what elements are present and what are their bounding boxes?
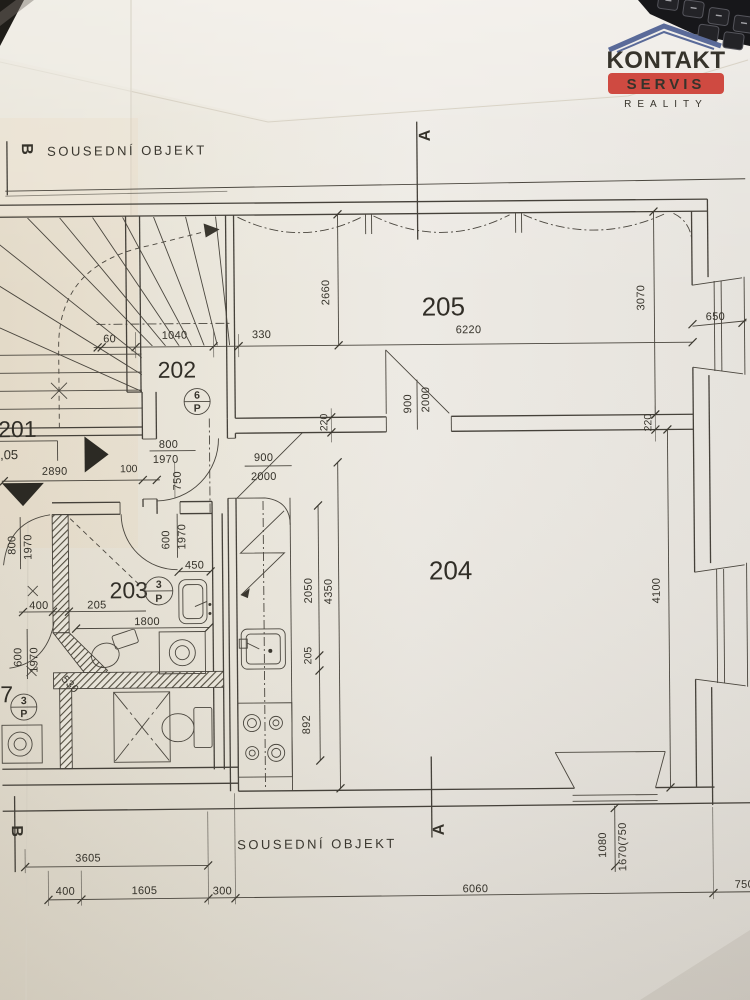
room-label-203: 203 [109,577,148,603]
dim-205: 205 [87,599,106,611]
room-label-204: 204 [429,555,473,585]
section-marker-b-top: B [18,143,35,155]
dim-2660: 2660 [320,280,332,306]
dim-450: 450 [185,559,204,571]
dim-60: 60 [103,333,116,345]
dim-3070: 3070 [635,285,647,311]
dim-door205-2000: 2000 [420,387,432,413]
dim-100: 100 [120,463,138,475]
dim-door202-800: 800 [159,439,178,451]
dim-2050: 2050 [303,578,315,604]
room-label-202: 202 [158,357,197,383]
dim-650: 650 [706,311,725,323]
dim-400-bottom: 400 [56,886,75,898]
section-marker-b-bottom: B [8,825,25,837]
symbol-3p-wc: 3 P [11,694,37,720]
symbol-6p-number: 6 [194,390,200,402]
symbol-6p: 6 P [184,388,210,414]
dim-1080: 1080 [597,832,609,858]
dim-door202-1970: 1970 [153,454,179,466]
dim-door204-900: 900 [254,452,273,464]
dim-1040: 1040 [162,330,188,342]
dim-300: 300 [213,885,232,897]
keyboard-key [708,7,730,26]
dim-892: 892 [301,715,313,734]
dim-door203-1970: 1970 [176,524,188,550]
symbol-3p2-letter: P [20,708,27,720]
logo-subtitle: SERVIS [627,76,706,93]
dim-doorW-600: 600 [12,647,24,666]
dim-door204-2000: 2000 [251,471,277,483]
dim-1605: 1605 [132,885,158,897]
dim-330: 330 [252,329,271,341]
dim-1670-750: 1670(750 [617,822,629,871]
dim-205-kitchen: 205 [302,647,314,665]
keyboard-key [682,0,704,18]
logo-title: KONTAKT [606,47,725,74]
keyboard-key [733,15,750,34]
dim-6060: 6060 [463,883,489,895]
dim-4100: 4100 [651,578,663,604]
symbol-3p2-number: 3 [21,695,27,707]
room-label-205: 205 [421,291,465,321]
dim-3605: 3605 [75,852,101,864]
symbol-6p-letter: P [194,403,201,415]
dim-750-bottom: 750 [735,879,750,891]
hatched-wall-left [52,515,69,633]
dim-1800: 1800 [134,616,160,628]
section-marker-a-top: A [417,129,434,141]
dim-220-right: 220 [642,414,654,432]
room-label-201: 201 [0,416,37,442]
symbol-3p-letter: P [155,593,162,605]
symbol-3p-bath: 3 P [145,577,173,605]
neighbor-label-bottom: SOUSEDNÍ OBJEKT [237,836,397,852]
logo-tagline: REALITY [624,99,708,110]
dim-400: 400 [29,600,48,612]
neighbor-label-top: SOUSEDNÍ OBJEKT [47,142,207,158]
dim-door205-900: 900 [402,394,414,413]
hatched-wall-strip [60,689,73,769]
dim-2890: 2890 [42,466,68,478]
elevation-value: 14,05 [0,447,18,462]
dim-doorL-800: 800 [6,535,18,554]
dim-doorW-1970: 1970 [28,647,40,673]
dim-door203-600: 600 [160,530,172,549]
dim-750: 750 [172,471,184,490]
dim-4350: 4350 [323,579,335,605]
photo-of-floor-plan: KONTAKT SERVIS REALITY B A A B SOUSEDNÍ … [0,0,750,1000]
dim-6220: 6220 [456,324,482,336]
dim-doorL-1970: 1970 [22,534,34,560]
section-marker-a-bottom: A [431,823,448,835]
symbol-3p-number: 3 [156,579,162,591]
keyboard-key [722,32,744,51]
dim-220-left: 220 [318,413,330,431]
